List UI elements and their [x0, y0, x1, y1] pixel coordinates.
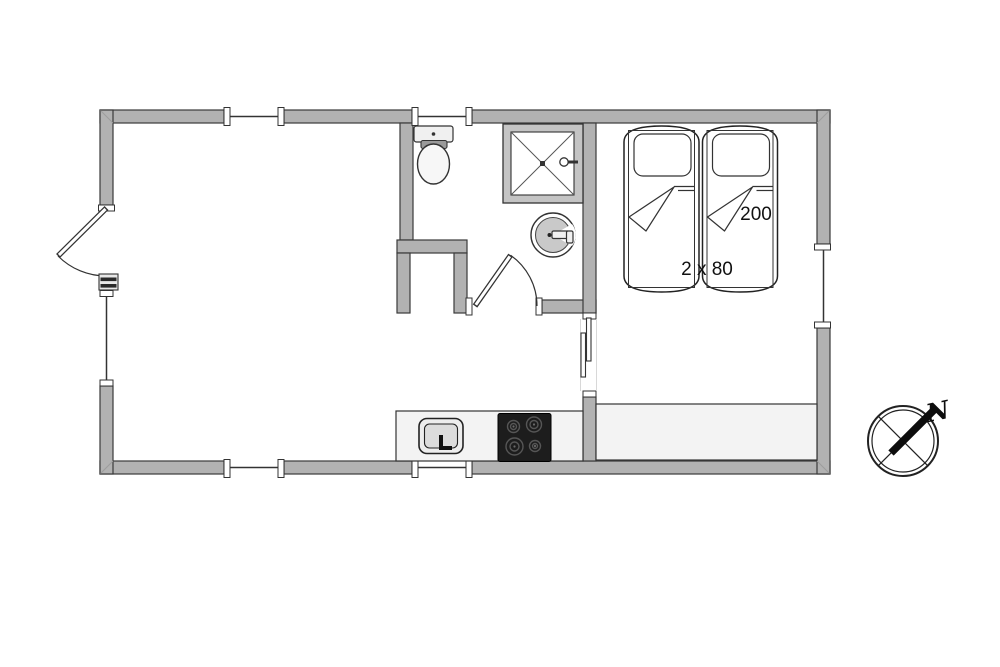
window-cap — [100, 380, 113, 386]
window-cap — [815, 322, 831, 328]
partition-wall — [454, 253, 467, 313]
drain-icon — [540, 161, 545, 166]
door-cap — [466, 298, 472, 315]
compass-rose: N — [868, 395, 953, 476]
window-cap — [278, 460, 284, 478]
wall-segment — [817, 110, 830, 244]
door-cap — [583, 391, 596, 397]
toilet — [414, 126, 453, 184]
window-cap — [224, 460, 230, 478]
window-cap — [100, 291, 113, 297]
washbasin — [531, 213, 576, 257]
sliding-door — [581, 318, 597, 391]
kitchen-sink — [419, 419, 463, 454]
window-cap — [224, 108, 230, 126]
entrance-door — [58, 208, 118, 290]
faucet-icon — [439, 446, 452, 450]
wall-segment — [284, 461, 412, 474]
partition-wall — [583, 397, 596, 461]
wall-segment — [817, 328, 830, 474]
wall-segment — [100, 461, 224, 474]
sliding-panel — [587, 318, 592, 361]
wall-segment — [472, 461, 830, 474]
pillow — [713, 134, 770, 176]
pillow — [634, 134, 691, 176]
bathroom-door — [475, 255, 537, 306]
shower-valve-icon — [560, 158, 568, 166]
cooktop-surface — [498, 414, 551, 462]
floor-plan-canvas: 200 2 x 80 N — [0, 0, 1000, 667]
door-hinge-block — [99, 274, 118, 290]
window-cap — [412, 460, 418, 478]
door-swing-arc — [511, 255, 537, 306]
wall-segment — [100, 110, 113, 205]
bed-length-label: 200 — [740, 204, 772, 225]
bedroom-counter — [596, 404, 817, 460]
window-cap — [412, 108, 418, 126]
cooktop — [498, 414, 551, 462]
partition-wall — [583, 123, 596, 313]
wall-segment — [472, 110, 830, 123]
door-swing-arc — [58, 256, 107, 276]
window-cap — [466, 460, 472, 478]
window-cap — [815, 244, 831, 250]
sliding-panel — [581, 333, 586, 377]
bed-width-label: 2 x 80 — [681, 259, 733, 280]
partition-wall — [400, 123, 413, 240]
wall-segment — [100, 386, 113, 474]
wall-segment — [284, 110, 412, 123]
faucet-icon — [567, 231, 574, 243]
partition-wall — [397, 240, 467, 253]
window-cap — [278, 108, 284, 126]
wall-segment — [100, 110, 224, 123]
partition-wall — [397, 253, 410, 313]
shower — [503, 124, 583, 203]
window-cap — [466, 108, 472, 126]
